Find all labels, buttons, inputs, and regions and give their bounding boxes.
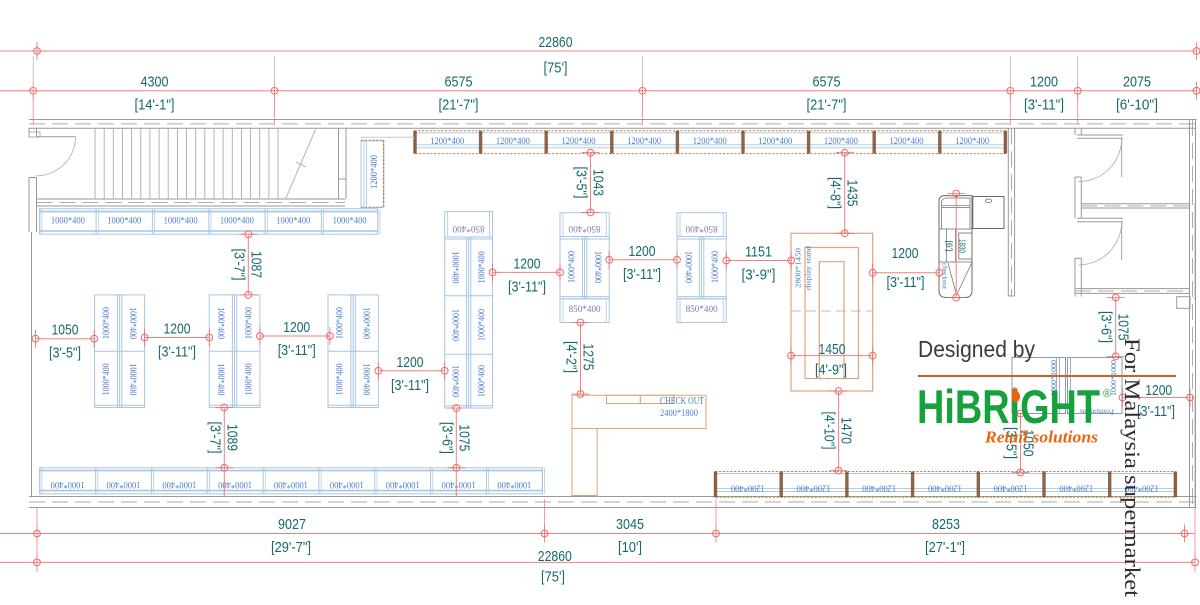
svg-text:1200*400: 1200*400 [796,483,830,493]
svg-text:[3'-11"]: [3'-11"] [623,267,661,283]
svg-text:1200*400: 1200*400 [627,136,661,146]
svg-text:1000*400: 1000*400 [128,363,138,395]
svg-text:1000*400: 1000*400 [451,365,461,397]
svg-text:1000*400: 1000*400 [162,480,196,490]
svg-text:1200: 1200 [1030,74,1058,91]
svg-text:[3'-11"]: [3'-11"] [158,345,196,361]
svg-text:2800*1450: 2800*1450 [794,248,803,288]
svg-text:2400*1800: 2400*1800 [660,409,698,419]
svg-text:1000*400: 1000*400 [451,309,461,341]
svg-text:1000*400: 1000*400 [274,480,308,490]
svg-text:Retail solutions: Retail solutions [984,428,1098,447]
svg-text:1000*400: 1000*400 [243,307,253,339]
svg-text:1000*400: 1000*400 [101,307,111,339]
svg-text:1275: 1275 [580,344,597,371]
svg-text:1000*400: 1000*400 [243,363,253,395]
svg-text:1000*400: 1000*400 [218,480,252,490]
svg-text:1000*400: 1000*400 [335,363,345,395]
svg-text:1000*400: 1000*400 [477,365,487,397]
svg-text:3045: 3045 [616,516,644,533]
svg-text:1000*400: 1000*400 [220,216,254,226]
svg-text:1050: 1050 [52,322,79,339]
svg-text:1000*400: 1000*400 [477,251,487,283]
svg-text:1200: 1200 [397,354,424,371]
svg-text:[4'-8"]: [4'-8"] [827,177,843,209]
svg-text:1000*400: 1000*400 [106,480,140,490]
svg-text:6575: 6575 [813,74,841,91]
svg-text:6575: 6575 [445,74,473,91]
svg-text:1000*400: 1000*400 [362,307,372,339]
svg-text:1000*400: 1000*400 [101,363,111,395]
svg-text:1000*400: 1000*400 [128,307,138,339]
svg-text:8253: 8253 [932,516,960,533]
svg-text:1200*400: 1200*400 [862,483,896,493]
svg-text:1200*400: 1200*400 [562,136,596,146]
svg-text:1435: 1435 [844,180,861,207]
svg-text:CHECK OUT: CHECK OUT [660,396,704,407]
svg-text:1200: 1200 [629,243,656,260]
svg-text:1000*400: 1000*400 [451,251,461,283]
svg-text:1200*400: 1200*400 [824,136,858,146]
svg-text:2075: 2075 [1123,74,1151,91]
svg-text:1200*400: 1200*400 [496,136,530,146]
svg-text:850*400: 850*400 [686,304,719,314]
svg-text:1000*400: 1000*400 [362,363,372,395]
svg-text:1200*400: 1200*400 [693,136,727,146]
svg-text:850*400: 850*400 [569,304,602,314]
svg-text:1000*400: 1000*400 [50,480,84,490]
svg-text:HiBRiGHT: HiBRiGHT [917,380,1100,433]
svg-text:1000*400: 1000*400 [107,216,141,226]
svg-text:1200*400: 1200*400 [890,136,924,146]
svg-text:[27'-1"]: [27'-1"] [925,540,965,556]
svg-text:850*400: 850*400 [568,224,601,234]
svg-text:1075: 1075 [455,424,472,451]
svg-text:1200: 1200 [164,321,191,338]
svg-text:®: ® [1103,388,1111,400]
svg-text:[3'-11"]: [3'-11"] [1024,98,1064,114]
svg-text:1200*400: 1200*400 [430,136,464,146]
svg-text:1200*400: 1200*400 [955,136,989,146]
svg-text:1000*400: 1000*400 [710,251,720,283]
svg-text:1000*400: 1000*400 [216,363,226,395]
svg-text:[75']: [75'] [541,570,565,586]
svg-text:1200*400: 1200*400 [1059,483,1093,493]
svg-text:[6']: [6'] [945,241,955,252]
svg-text:1450: 1450 [819,341,846,358]
svg-text:1000*400: 1000*400 [276,216,310,226]
svg-text:1200*400: 1200*400 [369,155,379,189]
svg-text:[29'-7"]: [29'-7"] [271,540,311,556]
svg-text:1000*400: 1000*400 [51,216,85,226]
svg-text:1000*400: 1000*400 [385,480,419,490]
svg-text:1043: 1043 [590,169,607,196]
svg-text:For Malaysia supermarket: For Malaysia supermarket [1120,338,1145,597]
svg-text:1000*400: 1000*400 [566,251,576,283]
svg-text:[3'-6"]: [3'-6"] [1098,311,1114,343]
svg-text:[3'-7"]: [3'-7"] [206,422,222,454]
svg-text:1200*400: 1200*400 [927,483,961,493]
svg-text:850*400: 850*400 [685,224,718,234]
svg-text:1200: 1200 [283,319,310,336]
svg-text:[3'-11"]: [3'-11"] [278,343,316,359]
svg-text:display stand: display stand [804,246,813,290]
svg-text:1000*400: 1000*400 [216,307,226,339]
svg-text:[21'-7"]: [21'-7"] [807,98,847,114]
svg-text:1000*400: 1000*400 [333,216,367,226]
svg-text:1200: 1200 [514,255,541,272]
svg-text:1087: 1087 [247,251,264,278]
svg-text:1000*400: 1000*400 [441,480,475,490]
svg-text:[3'-7"]: [3'-7"] [230,249,246,281]
svg-text:1470: 1470 [838,417,855,444]
svg-text:[4'-10"]: [4'-10"] [821,412,837,450]
svg-text:850*400: 850*400 [452,224,485,234]
svg-text:1200: 1200 [892,245,919,262]
svg-text:1200: 1200 [1145,382,1172,399]
svg-text:[3'-11"]: [3'-11"] [508,279,546,295]
svg-text:[4'-9"]: [4'-9"] [815,363,847,379]
svg-text:1830: 1830 [958,239,968,253]
svg-text:[14'-1"]: [14'-1"] [135,98,175,114]
svg-text:1000*400: 1000*400 [497,480,531,490]
svg-text:4300: 4300 [141,74,169,91]
svg-text:[3'-11"]: [3'-11"] [391,378,429,394]
svg-text:[4'-2"]: [4'-2"] [563,341,579,373]
svg-text:1089: 1089 [223,424,240,451]
svg-text:[3'-5"]: [3'-5"] [573,167,589,199]
svg-text:1151: 1151 [745,244,772,261]
svg-text:[6'-10"]: [6'-10"] [1116,98,1158,114]
svg-text:1200*400: 1200*400 [730,483,764,493]
svg-text:[10']: [10'] [618,540,642,556]
svg-text:1200*400: 1200*400 [993,483,1027,493]
svg-text:[3'-9"]: [3'-9"] [742,268,776,284]
svg-text:[75']: [75'] [544,61,568,77]
svg-text:1000*400: 1000*400 [683,251,693,283]
svg-text:checkout: checkout [941,263,950,290]
svg-text:[3'-6"]: [3'-6"] [438,422,454,454]
svg-text:22860: 22860 [538,548,572,565]
svg-text:1075: 1075 [1115,314,1132,341]
svg-text:9027: 9027 [278,516,306,533]
svg-text:1000*400: 1000*400 [477,309,487,341]
svg-text:[21'-7"]: [21'-7"] [439,98,479,114]
svg-text:1000*400: 1000*400 [329,480,363,490]
svg-text:1000*400: 1000*400 [164,216,198,226]
svg-text:1200*400: 1200*400 [758,136,792,146]
svg-text:1000*400: 1000*400 [335,307,345,339]
svg-text:1000*400: 1000*400 [593,251,603,283]
svg-text:22860: 22860 [539,34,573,51]
svg-text:[3'-5"]: [3'-5"] [49,346,81,362]
svg-text:Designed by: Designed by [918,336,1035,362]
svg-text:[3'-11"]: [3'-11"] [887,275,925,291]
